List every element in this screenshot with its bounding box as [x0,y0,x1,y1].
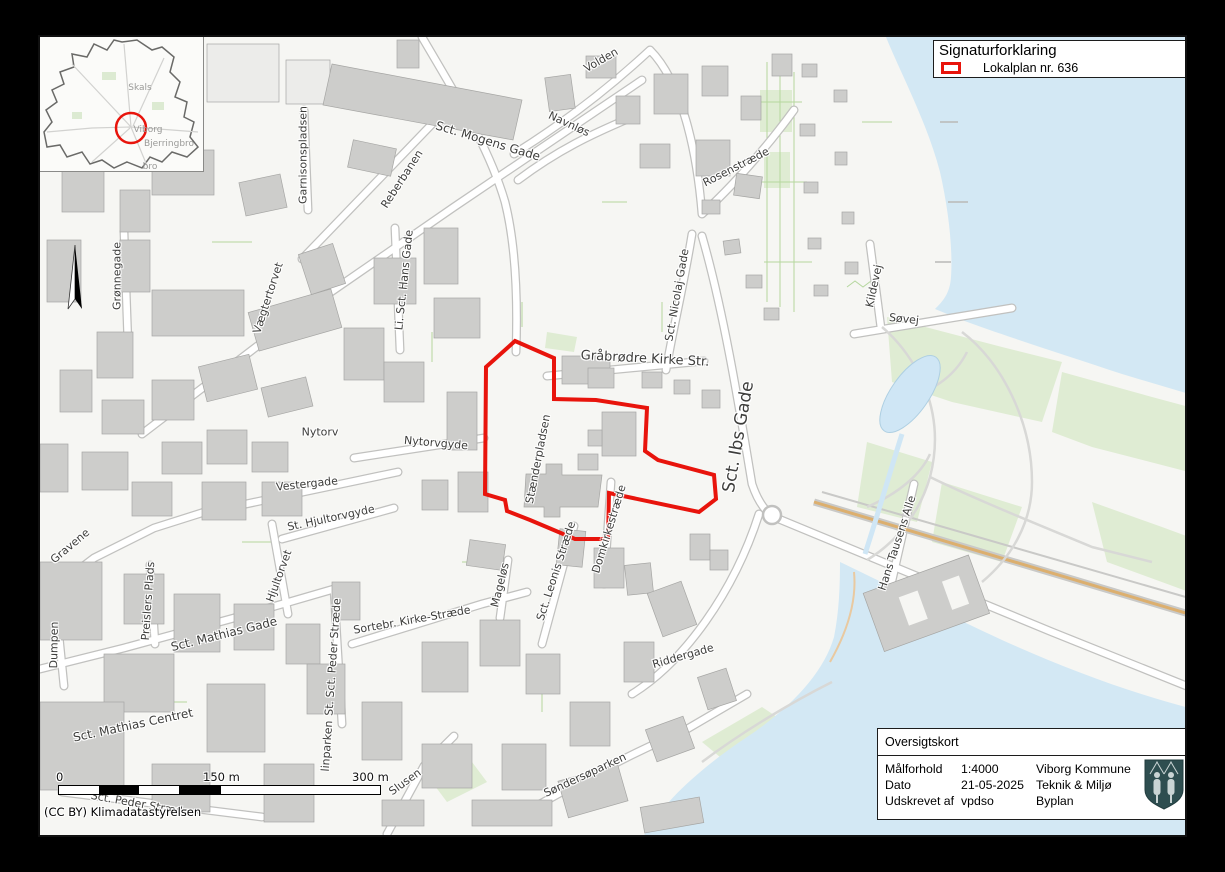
street-label: linparken [320,720,335,772]
scale-tick-150: 150 m [203,770,240,784]
inset-place-label: Skals [128,83,151,93]
inset-place-label: Bjerringbro [144,139,194,149]
info-box-title: Oversigtskort [878,729,1185,756]
inset-locator-map: SkalsViborgBjerringbrobro [40,37,204,172]
info-value: 1:4000 [961,761,1024,777]
lokalplan-swatch-icon [941,62,961,74]
org-line: Teknik & Miljø [1036,777,1131,793]
map-canvas [40,37,1187,837]
attribution-text: (CC BY) Klimadatastyrelsen [44,805,201,819]
roundabout [763,506,781,524]
scale-tick-300: 300 m [352,770,389,784]
map-page: VoldenNavnløsSct. Mogens GadeRosenstræde… [38,35,1187,837]
info-label: Målforhold [885,761,954,777]
info-value: vpdso [961,793,1024,809]
info-value: 21-05-2025 [961,777,1024,793]
street-label: Nytorv [302,427,339,438]
legend-item-label: Lokalplan nr. 636 [983,61,1078,75]
info-values-column: 1:4000 21-05-2025 vpdso [961,761,1024,809]
legend-item: Lokalplan nr. 636 [941,61,1185,75]
organization-column: Viborg Kommune Teknik & Miljø Byplan [1036,761,1131,809]
scale-tick-0: 0 [56,770,63,784]
street-label: Grønnegade [112,242,123,310]
info-label: Udskrevet af [885,793,954,809]
info-label: Dato [885,777,954,793]
info-box: Oversigtskort Målforhold Dato Udskrevet … [877,728,1185,820]
viborg-coat-of-arms [1144,758,1184,814]
inset-canvas [40,37,203,171]
scale-bar-segments [58,785,381,795]
org-line: Viborg Kommune [1036,761,1131,777]
street-label: Søvej [888,312,919,326]
org-line: Byplan [1036,793,1131,809]
street-label: Garnisonspladsen [298,106,309,204]
legend-box: Signaturforklaring Lokalplan nr. 636 [933,40,1185,78]
street-label: Dumpen [48,621,60,668]
legend-title: Signaturforklaring [934,41,1185,59]
inset-place-label: Viborg [134,125,163,135]
inset-place-label: bro [143,162,158,172]
info-labels-column: Målforhold Dato Udskrevet af [885,761,954,809]
